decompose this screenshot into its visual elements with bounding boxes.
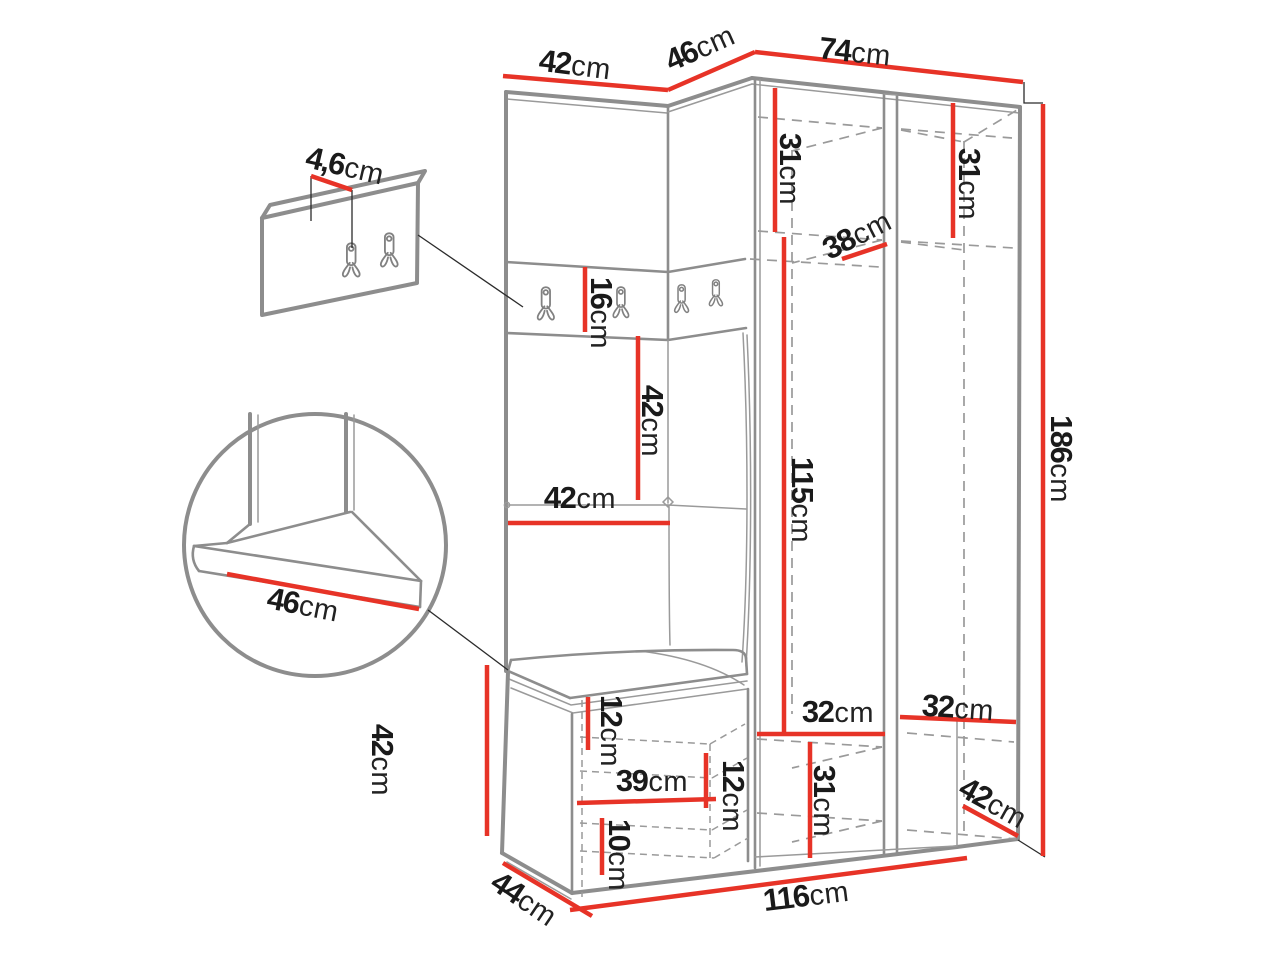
dim-bench-top-offset: 12cm [595, 695, 627, 767]
dim-bench-shelf-gap: 12cm [717, 760, 749, 832]
coat-hook-icon [343, 243, 360, 276]
dim-padded-section-height: 42cm [636, 385, 668, 457]
coat-hook-icon [709, 280, 722, 306]
dim-interior-bottom-left-width: 32cm [802, 696, 874, 728]
dim-interior-bottom-right-width: 32cm [921, 690, 995, 727]
wall-hook-panel-detail [262, 171, 425, 315]
dim-interior-bottom-height: 31cm [808, 765, 840, 837]
left-panel [504, 92, 668, 671]
dim-total-height: 186cm [1045, 415, 1077, 503]
dim-interior-right-top: 31cm [953, 148, 985, 220]
coat-hook-icon [538, 287, 554, 319]
bench-corner-detail [184, 414, 446, 676]
dim-padded-section-width: 42cm [544, 482, 616, 514]
dim-wardrobe-width: 74cm [817, 32, 892, 71]
dim-hanging-height: 115cm [786, 457, 818, 543]
dim-bench-height: 42cm [366, 724, 398, 796]
coat-hook-icon [675, 285, 689, 312]
corner-section [640, 78, 752, 685]
dim-hook-strip-height: 16cm [585, 277, 617, 349]
dim-bench-interior-width: 39cm [616, 765, 688, 797]
furniture-line-art [0, 0, 1280, 960]
coat-hooks [538, 280, 723, 320]
dim-bench-bottom-gap: 10cm [603, 819, 635, 891]
dim-interior-left-top: 31cm [774, 133, 806, 205]
coat-hook-icon [381, 233, 398, 266]
diagram-canvas: 42cm 46cm 74cm 4,6cm 16cm 42cm 42cm 31cm… [0, 0, 1280, 960]
